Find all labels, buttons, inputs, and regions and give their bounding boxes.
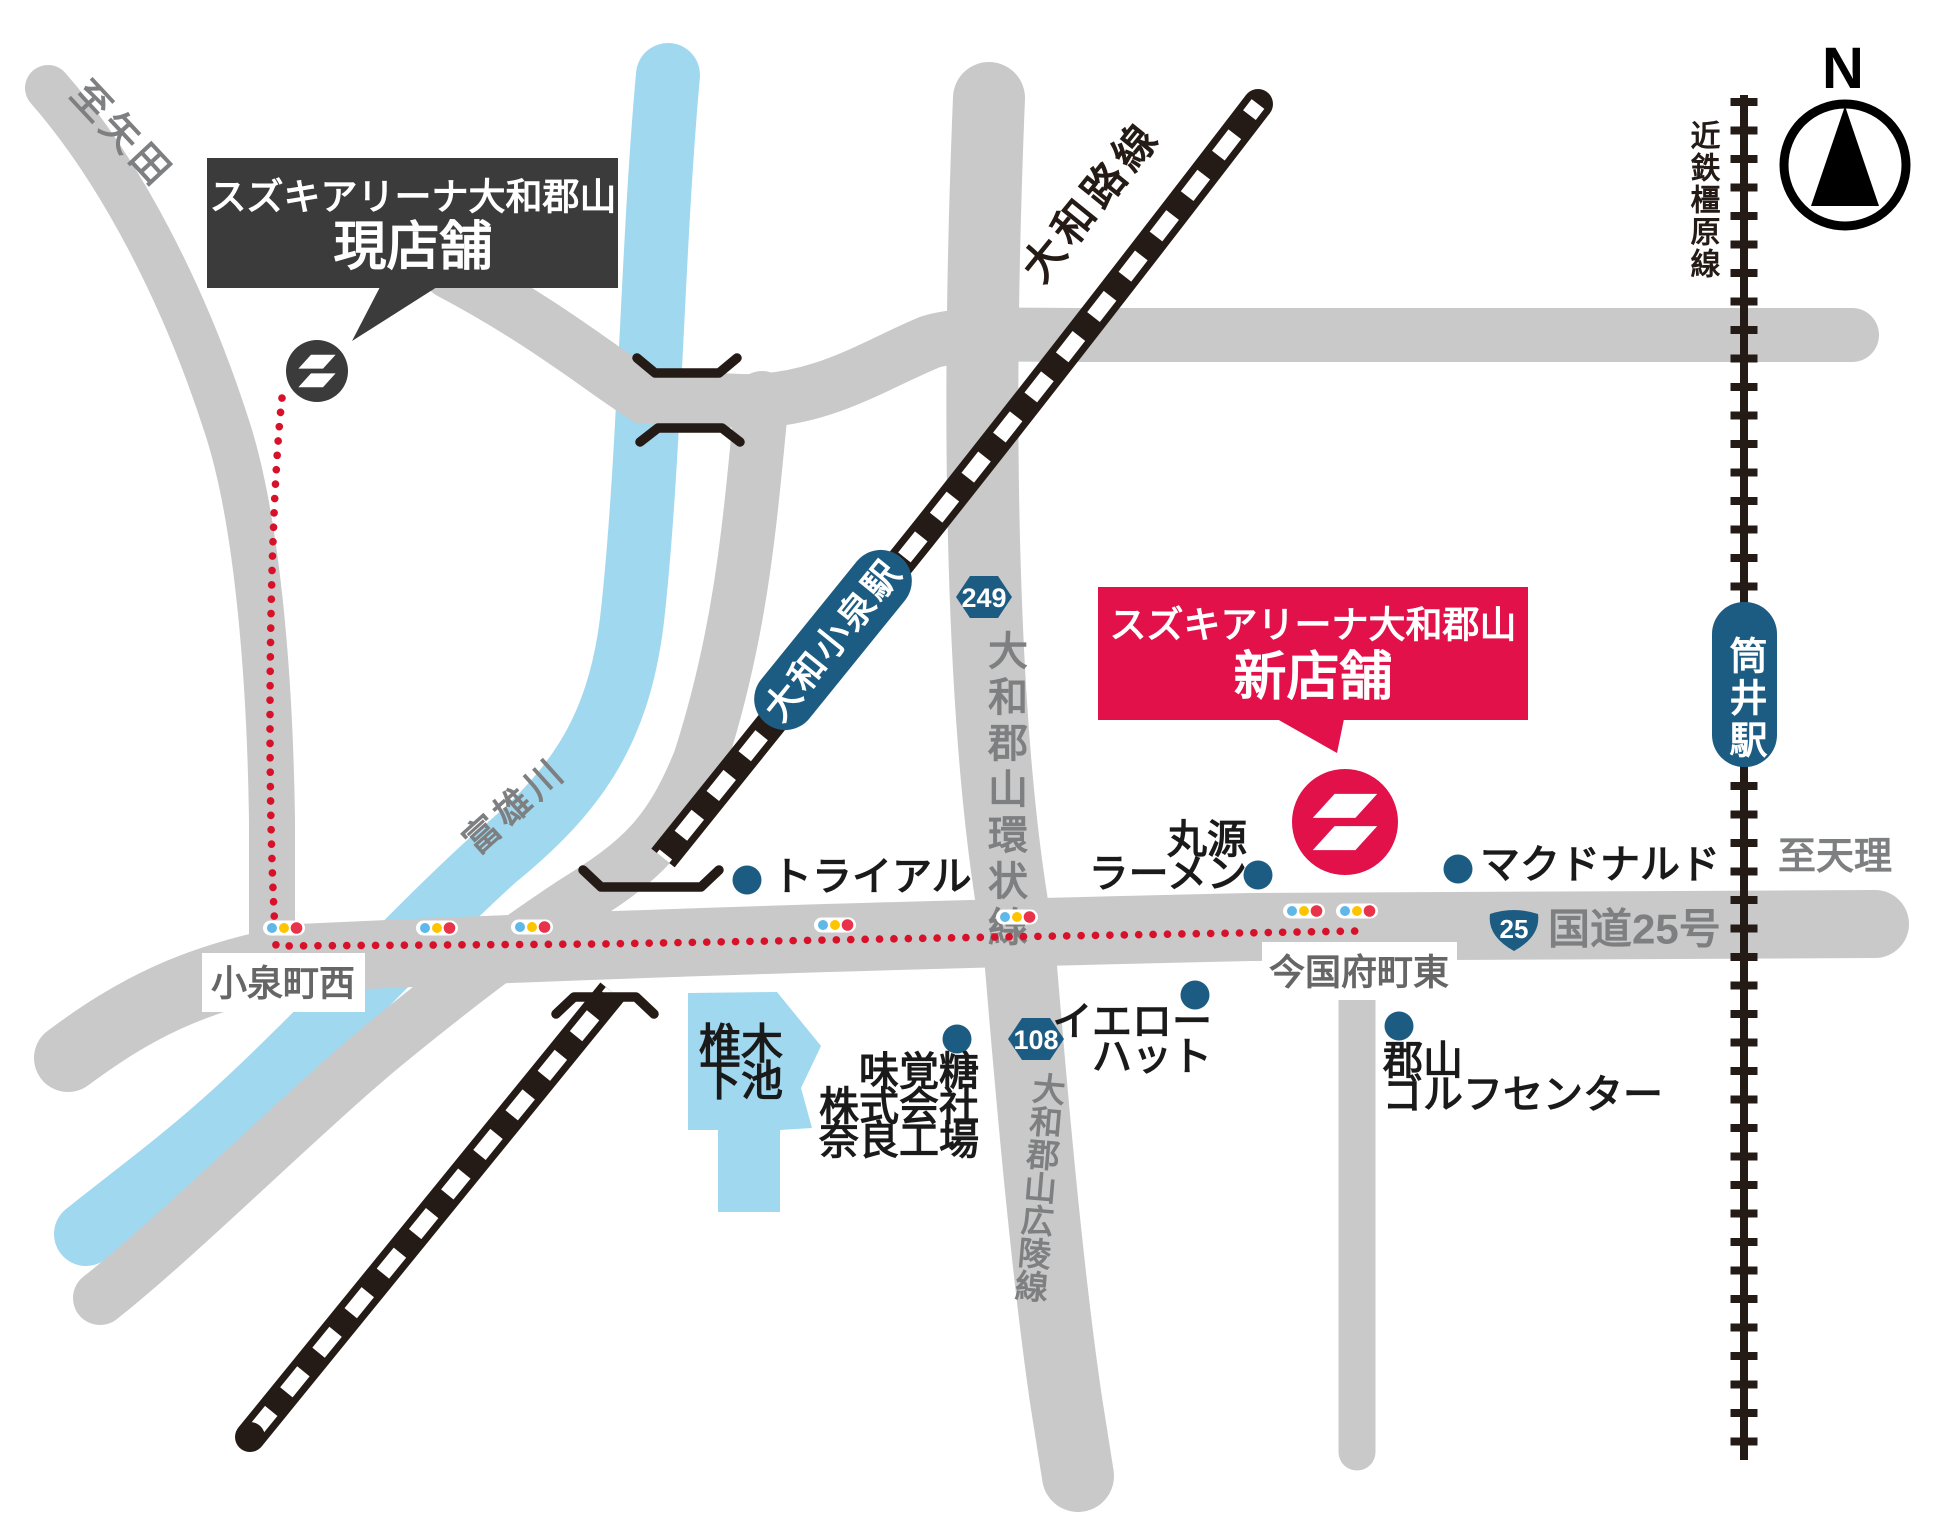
poi-label-yellow-hat-line2: ハット	[1092, 1035, 1212, 1079]
station-tsutsui: 筒井駅	[1712, 602, 1777, 767]
poi-dot-marugen-ramen	[1244, 861, 1273, 890]
callout-new-store: スズキアリーナ大和郡山 新店舗	[1098, 587, 1528, 753]
compass-icon: N	[1784, 36, 1906, 226]
ring-road-label: 大和郡山環状線	[982, 630, 1029, 952]
traffic-light-icon	[263, 921, 305, 936]
intersection-koizumicho-nishi-label: 小泉町西	[211, 963, 355, 1004]
poi-dot-mcdonalds	[1444, 855, 1473, 884]
poi-dot-trial	[733, 866, 762, 895]
poi-label-trial: トライアル	[772, 855, 972, 899]
poi-label-golf-line2: ゴルフセンター	[1383, 1072, 1663, 1117]
kintetsu-line-label: 近鉄橿原線	[1686, 120, 1721, 280]
suzuki-logo-new-store	[1292, 769, 1398, 875]
station-yamato-koizumi-label: 大和小泉駅	[756, 551, 911, 728]
poi-dot-koriyama-golf-center	[1385, 1012, 1414, 1041]
intersection-imagoko-cho-higashi: 今国府町東	[1262, 942, 1457, 1000]
route-badge-25-label: 25	[1500, 914, 1529, 944]
map-canvas: 大和郡山環状線 大和郡山広陵線	[0, 0, 1960, 1540]
traffic-light-icon	[1283, 904, 1325, 919]
station-tsutsui-label: 筒井駅	[1723, 636, 1767, 762]
callout-pointer	[1277, 719, 1344, 753]
poi-label-mikakuto-line3: 奈良工場	[818, 1119, 979, 1163]
route-badge-249: 249	[956, 576, 1012, 618]
route25-name-label: 国道25号	[1548, 906, 1721, 953]
pond-label-line2: 下池	[699, 1058, 783, 1105]
callout-new-store-line1: スズキアリーナ大和郡山	[1110, 604, 1517, 646]
traffic-light-icon	[1336, 904, 1378, 919]
traffic-light-icon	[511, 920, 553, 935]
intersection-imagoko-cho-higashi-label: 今国府町東	[1269, 952, 1449, 993]
callout-pointer	[352, 287, 437, 341]
suzuki-logo-current-store	[286, 340, 348, 402]
rail-end-cap	[235, 1422, 265, 1452]
callout-current-store-line1: スズキアリーナ大和郡山	[210, 176, 617, 218]
poi-label-marugen-line2: ラーメン	[1089, 852, 1247, 896]
traffic-light-icon	[814, 918, 856, 933]
traffic-light-icon	[996, 910, 1038, 925]
store-relocation-map: 大和郡山環状線 大和郡山広陵線	[0, 0, 1960, 1540]
callout-current-store-line2: 現店舗	[334, 218, 493, 277]
intersection-koizumicho-nishi: 小泉町西	[202, 953, 365, 1012]
callout-new-store-line2: 新店舗	[1234, 648, 1393, 707]
direction-to-tenri: 至天理	[1778, 836, 1892, 878]
poi-label-mcdonalds: マクドナルド	[1480, 843, 1720, 887]
compass-north-label: N	[1822, 36, 1864, 101]
route-badge-249-label: 249	[961, 583, 1006, 613]
traffic-light-icon	[416, 921, 458, 936]
